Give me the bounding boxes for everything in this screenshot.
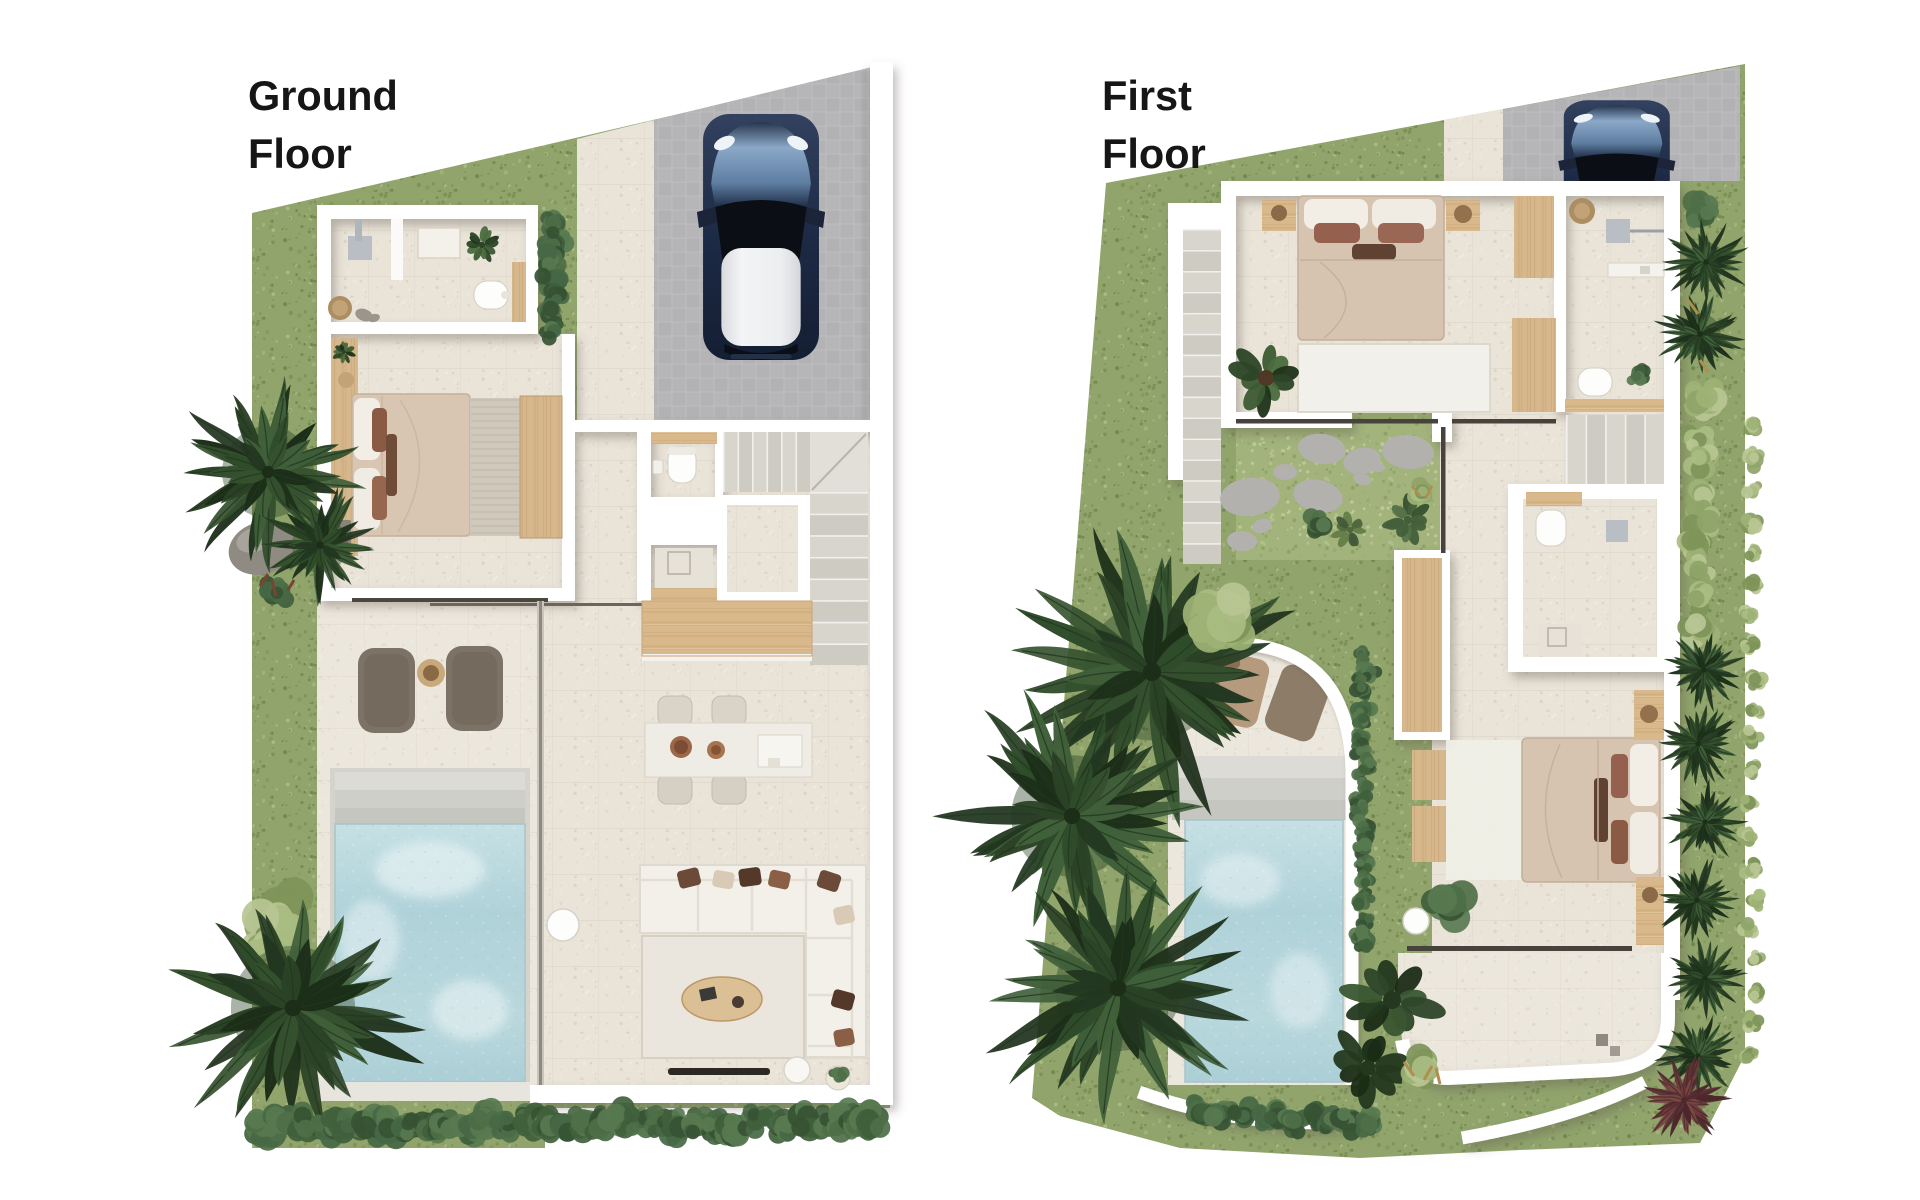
svg-text:First: First bbox=[1102, 72, 1192, 119]
svg-text:Floor: Floor bbox=[1102, 130, 1206, 177]
svg-text:Ground: Ground bbox=[248, 72, 398, 119]
svg-text:Floor: Floor bbox=[248, 130, 352, 177]
